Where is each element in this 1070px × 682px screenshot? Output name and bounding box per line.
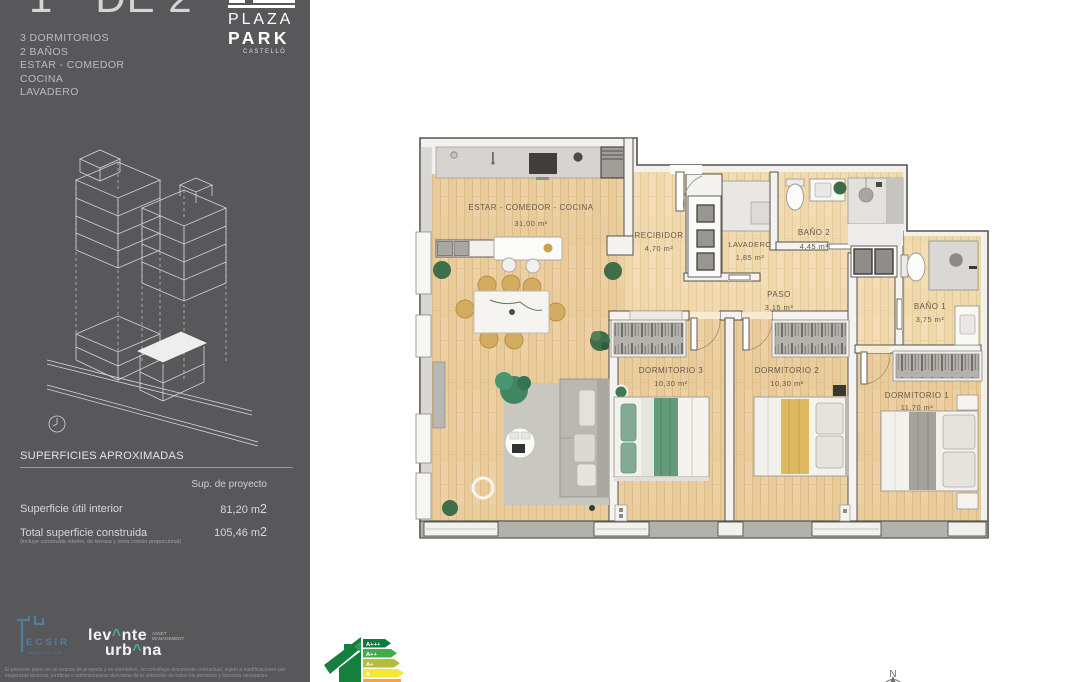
svg-text:10,30 m²: 10,30 m² <box>770 379 803 388</box>
svg-text:11,70 m²: 11,70 m² <box>901 403 934 412</box>
svg-text:1,85 m²: 1,85 m² <box>736 253 765 262</box>
svg-text:A+++: A+++ <box>366 642 381 648</box>
svg-text:3,15 m²: 3,15 m² <box>765 303 794 312</box>
svg-text:ESTAR - COMEDOR - COCINA: ESTAR - COMEDOR - COCINA <box>468 203 593 212</box>
svg-text:PASO: PASO <box>767 290 791 299</box>
svg-text:31,00 m²: 31,00 m² <box>514 219 547 228</box>
svg-text:3,75 m²: 3,75 m² <box>916 315 945 324</box>
svg-text:4,70 m²: 4,70 m² <box>645 244 674 253</box>
svg-text:A++: A++ <box>366 652 378 658</box>
svg-text:DORMITORIO 2: DORMITORIO 2 <box>755 366 820 375</box>
svg-text:LAVADERO: LAVADERO <box>728 240 771 249</box>
svg-text:RECIBIDOR: RECIBIDOR <box>635 231 684 240</box>
svg-text:DORMITORIO 1: DORMITORIO 1 <box>885 391 950 400</box>
svg-text:A+: A+ <box>366 662 374 668</box>
svg-text:4,45 m²: 4,45 m² <box>800 242 829 251</box>
svg-text:10,30 m²: 10,30 m² <box>654 379 687 388</box>
svg-text:BAÑO 1: BAÑO 1 <box>914 302 946 311</box>
svg-text:BAÑO 2: BAÑO 2 <box>798 228 830 237</box>
svg-text:DORMITORIO 3: DORMITORIO 3 <box>639 366 704 375</box>
